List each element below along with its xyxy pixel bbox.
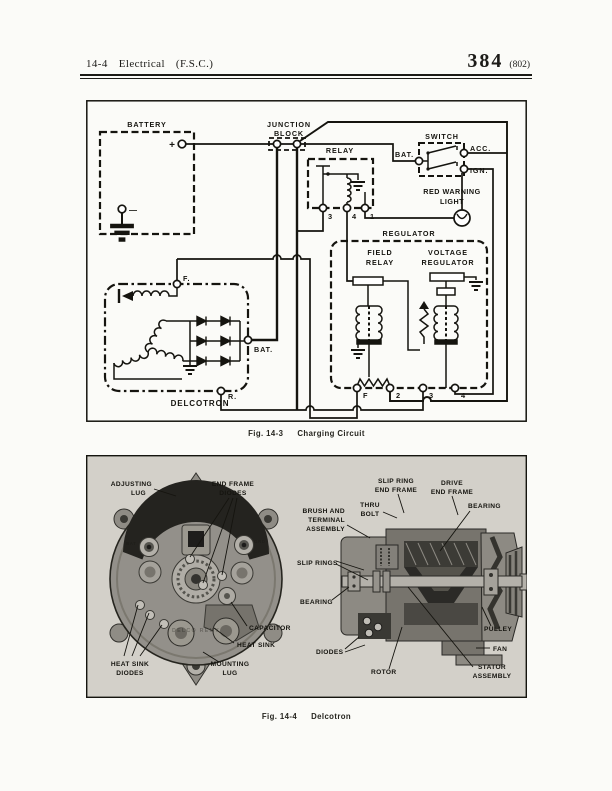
charging-circuit-diagram: BATTERY + — JUNCTION BLOCK RELAY (86, 100, 527, 422)
relay-terminal-4 (343, 204, 350, 211)
delcotron-internals (114, 284, 244, 379)
figure-2-title: Delcotron (311, 712, 351, 721)
switch-component: SWITCH BAT. ACC. IGN. (395, 132, 491, 176)
delcotron-box (105, 284, 248, 391)
adjusting-lug-label-1: ADJUSTING (111, 481, 152, 488)
brush-terminal-label-1: BRUSH AND (303, 508, 345, 515)
battery-minus-sign: — (129, 206, 137, 215)
drive-end-frame-label-2: END FRAME (431, 489, 474, 496)
diodes-label: DIODES (316, 649, 344, 656)
bat-stamp-text: BAT (126, 541, 137, 546)
section-number: 14-4 (86, 58, 108, 70)
header-left: 14-4Electrical(F.S.C.) (86, 58, 213, 70)
mounting-lug-label-1: MOUNTING (211, 661, 250, 668)
figure-charging-circuit: BATTERY + — JUNCTION BLOCK RELAY (86, 100, 527, 427)
battery-ground-icon (110, 226, 134, 240)
slip-ring-end-frame-label-1: SLIP RING (378, 478, 414, 485)
delcotron-label: DELCOTRON (171, 399, 230, 408)
manual-page: 14-4Electrical(F.S.C.) 384(802) (0, 0, 612, 791)
field-relay-label-2: RELAY (366, 258, 394, 267)
heat-sink-label: HEAT SINK (237, 642, 275, 649)
switch-label: SWITCH (425, 132, 459, 141)
delcotron-photos: DELCO REMY BAT GRD (86, 455, 527, 698)
bearing-top-label: BEARING (468, 503, 501, 510)
figure-2-number: Fig. 14-4 (262, 712, 297, 721)
relay-terminal-3-label: 3 (328, 212, 332, 221)
relay-terminal-1-label: 1 (370, 212, 374, 221)
switch-ign-terminal (460, 165, 467, 172)
voltage-regulator-label-1: VOLTAGE (428, 248, 468, 257)
regulator-terminal-2-label: 2 (396, 391, 400, 400)
fan-label: FAN (493, 646, 507, 653)
embossed-brand-text: DELCO REMY (172, 628, 220, 634)
relay-terminal-3 (319, 204, 326, 211)
slip-ring-end-frame-label-2: END FRAME (375, 487, 418, 494)
heat-sink-diodes-label-1: HEAT SINK (111, 661, 149, 668)
delcotron-f-terminal (173, 280, 180, 287)
field-relay-internals (353, 277, 420, 377)
relay-terminal-4-label: 4 (352, 212, 357, 221)
battery-label: BATTERY (127, 120, 166, 129)
mounting-lug-label-2: LUG (223, 670, 238, 677)
voltage-regulator-label-2: REGULATOR (422, 258, 475, 267)
junction-terminal-2 (293, 140, 300, 147)
stator-assembly-label-2: ASSEMBLY (473, 673, 512, 680)
delcotron-bat-terminal (244, 336, 251, 343)
chapter-subtitle: (F.S.C.) (176, 58, 213, 70)
relay-terminal-1 (361, 204, 368, 211)
delcotron-component: DELCOTRON (105, 274, 273, 408)
stator-assembly-label-1: STATOR (478, 664, 506, 671)
junction-block-label-1: JUNCTION (267, 120, 311, 129)
regulator-terminal-f-label: F (363, 391, 368, 400)
relay-label: RELAY (326, 146, 354, 155)
regulator-terminal-2 (386, 384, 393, 391)
adjusting-lug-label-2: LUG (131, 490, 146, 497)
thru-bolt-label-1: THRU (360, 502, 380, 509)
header-rule-thin (80, 78, 532, 79)
regulator-component: REGULATOR FIELD RELAY VOLTAGE REGULATOR (331, 229, 487, 400)
battery-minus-terminal (118, 205, 126, 213)
battery-component: BATTERY + — (100, 120, 194, 240)
figure-delcotron: DELCO REMY BAT GRD (86, 455, 527, 703)
regulator-label: REGULATOR (383, 229, 436, 238)
slip-rings-label: SLIP RINGS (297, 560, 338, 567)
switch-acc-terminal (460, 149, 467, 156)
battery-plus-sign: + (169, 140, 175, 151)
junction-terminal-1 (273, 140, 280, 147)
switch-ign-label: IGN. (470, 166, 488, 175)
relay-ground-icon (351, 182, 365, 190)
drive-end-frame-label-1: DRIVE (441, 480, 463, 487)
relay-component: RELAY 3 4 1 (308, 146, 374, 221)
regulator-terminal-f (353, 384, 360, 391)
delcotron-bat-label: BAT. (254, 345, 273, 354)
delcotron-r-label: R. (228, 392, 237, 401)
figure-caption-1: Fig. 14-3Charging Circuit (86, 429, 527, 438)
heat-sink-diodes-label-2: DIODES (116, 670, 144, 677)
thru-bolt-label-2: BOLT (361, 511, 380, 518)
figure-1-number: Fig. 14-3 (248, 429, 283, 438)
figure-caption-2: Fig. 14-4Delcotron (86, 712, 527, 721)
warning-light-component: RED WARNING LIGHT (423, 187, 480, 226)
regulator-terminal-4-label: 4 (461, 391, 466, 400)
pulley-label: PULLEY (484, 626, 512, 633)
bearing-left-label: BEARING (300, 599, 333, 606)
end-frame-diodes-label-2: DIODES (219, 490, 247, 497)
rotor-label: ROTOR (371, 669, 396, 676)
figure-1-title: Charging Circuit (297, 429, 364, 438)
circuit-wires (177, 122, 507, 418)
warning-light-label-1: RED WARNING (423, 187, 480, 196)
warning-light-label-2: LIGHT (440, 197, 464, 206)
delcotron-r-terminal (217, 387, 224, 394)
switch-bat-terminal (415, 157, 422, 164)
brush-terminal-label-2: TERMINAL (308, 517, 345, 524)
end-frame-diodes-label-1: END FRAME (212, 481, 255, 488)
page-number: 384 (467, 50, 503, 72)
junction-block-component: JUNCTION BLOCK (267, 120, 311, 150)
switch-acc-label: ACC. (470, 144, 491, 153)
voltage-regulator-internals (420, 273, 476, 388)
field-relay-label-1: FIELD (367, 248, 392, 257)
edition-number: (802) (509, 60, 530, 70)
capacitor-label: CAPACITOR (249, 625, 291, 632)
brush-terminal-label-3: ASSEMBLY (306, 526, 345, 533)
regulator-terminal-4 (451, 384, 458, 391)
regulator-terminal-3 (419, 384, 426, 391)
battery-plus-terminal (178, 140, 186, 148)
grd-stamp-text: GRD (254, 539, 266, 544)
regulator-terminal-3-label: 3 (429, 391, 433, 400)
switch-bat-label: BAT. (395, 150, 414, 159)
resistor-icon (357, 379, 390, 386)
header-right: 384(802) (467, 50, 530, 73)
delcotron-f-label: F. (183, 274, 190, 283)
header-rule-thick (80, 74, 532, 76)
junction-block-label-2: BLOCK (274, 129, 304, 138)
chapter-title: Electrical (119, 58, 165, 70)
